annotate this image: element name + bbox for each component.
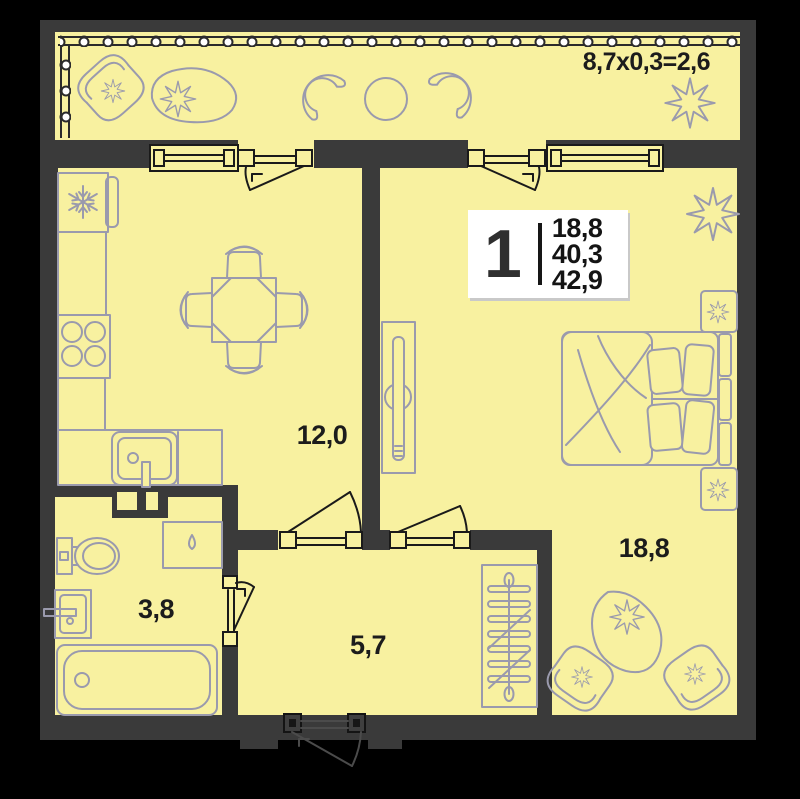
apartment-info-box: 1 18,8 40,3 42,9 [468, 210, 628, 298]
bedroom-window [547, 145, 663, 171]
kitchen-window [150, 145, 238, 171]
pillow [681, 400, 714, 455]
faucet [142, 462, 150, 487]
kitchen-living-area-label: 12,0 [290, 420, 354, 451]
hanging-rail-icon [488, 573, 530, 701]
pillow [647, 403, 683, 452]
floor-plan: 8,7x0,3=2,6 12,0 18,8 3,8 5,7 1 18,8 40,… [0, 0, 800, 799]
tv-screen [393, 337, 404, 460]
floor-plan-drawing [0, 0, 800, 799]
balcony-dimension-label: 8,7x0,3=2,6 [500, 48, 710, 77]
total-area-value: 42,9 [552, 267, 603, 293]
hallway-area-label: 5,7 [338, 630, 398, 661]
area-values: 18,8 40,3 42,9 [552, 215, 603, 293]
pillow [682, 344, 714, 396]
bedroom-area-label: 18,8 [609, 533, 679, 564]
bathroom-area-label: 3,8 [126, 594, 186, 625]
pillow [647, 347, 683, 394]
living-area-value: 18,8 [552, 215, 603, 241]
divider [538, 223, 542, 285]
apartment-area-value: 40,3 [552, 241, 603, 267]
room-count: 1 [484, 220, 522, 288]
